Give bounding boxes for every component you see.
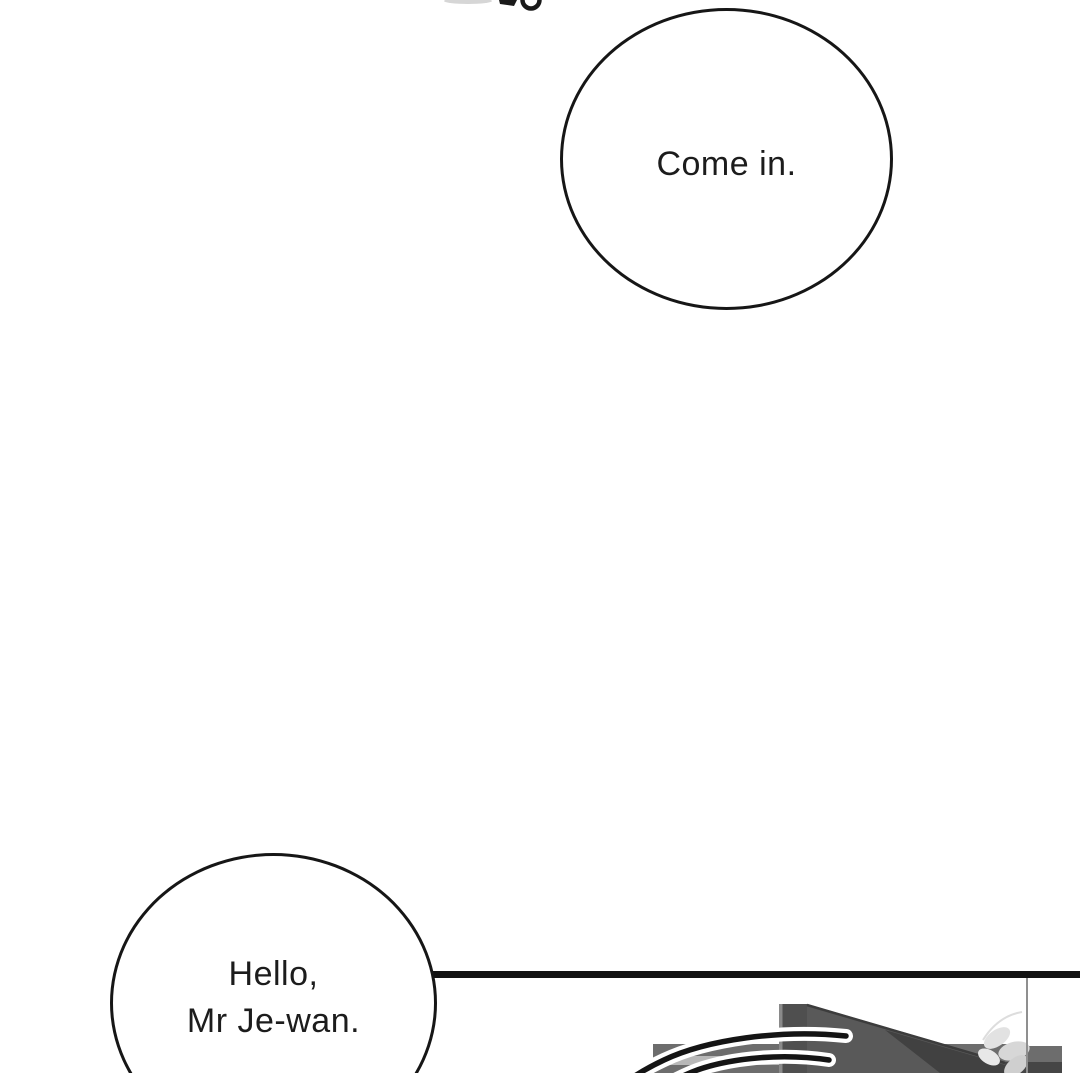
door-bar — [779, 1004, 807, 1073]
logo-swoosh-upper-halo — [592, 1034, 846, 1073]
dialog-text-hello: Hello, Mr Je-wan. — [113, 951, 434, 1045]
wall-divider-line — [1026, 978, 1028, 1073]
logo-swoosh-lower — [630, 1057, 829, 1073]
sfx-smudge — [444, 0, 492, 4]
speech-bubble-hello: Hello, Mr Je-wan. — [110, 853, 437, 1073]
dialog-text-come-in: Come in. — [563, 141, 890, 187]
right-band-dark — [935, 1062, 1062, 1073]
logo-swoosh-upper — [592, 1034, 846, 1073]
panel-border-line — [433, 971, 1080, 978]
sfx-dash — [499, 0, 517, 6]
right-band — [935, 1046, 1062, 1062]
comic-page: Come in. Hello, — [0, 0, 1080, 1073]
flower-stem — [983, 1012, 1022, 1040]
back-panel-rect — [653, 1044, 1010, 1073]
flower-petal-2 — [996, 1038, 1032, 1064]
wedge-top-edge — [807, 1005, 1005, 1063]
logo-swoosh-lower-halo — [630, 1057, 829, 1073]
speech-bubble-come-in: Come in. — [560, 8, 893, 310]
flower-petal-3 — [975, 1045, 1003, 1069]
sfx-loop — [523, 0, 540, 9]
flower-petal-1 — [980, 1023, 1014, 1053]
door-bar-highlight — [779, 1004, 783, 1073]
dialog-line-2: Mr Je-wan. — [113, 998, 434, 1045]
back-panel-stripe — [668, 1056, 826, 1065]
door-sign-wedge — [807, 1004, 1005, 1073]
wedge-shadow-edge — [885, 1030, 1005, 1073]
flower-petal-4 — [1000, 1051, 1032, 1073]
right-band-curve — [932, 1064, 972, 1071]
dialog-line-1: Hello, — [113, 951, 434, 998]
